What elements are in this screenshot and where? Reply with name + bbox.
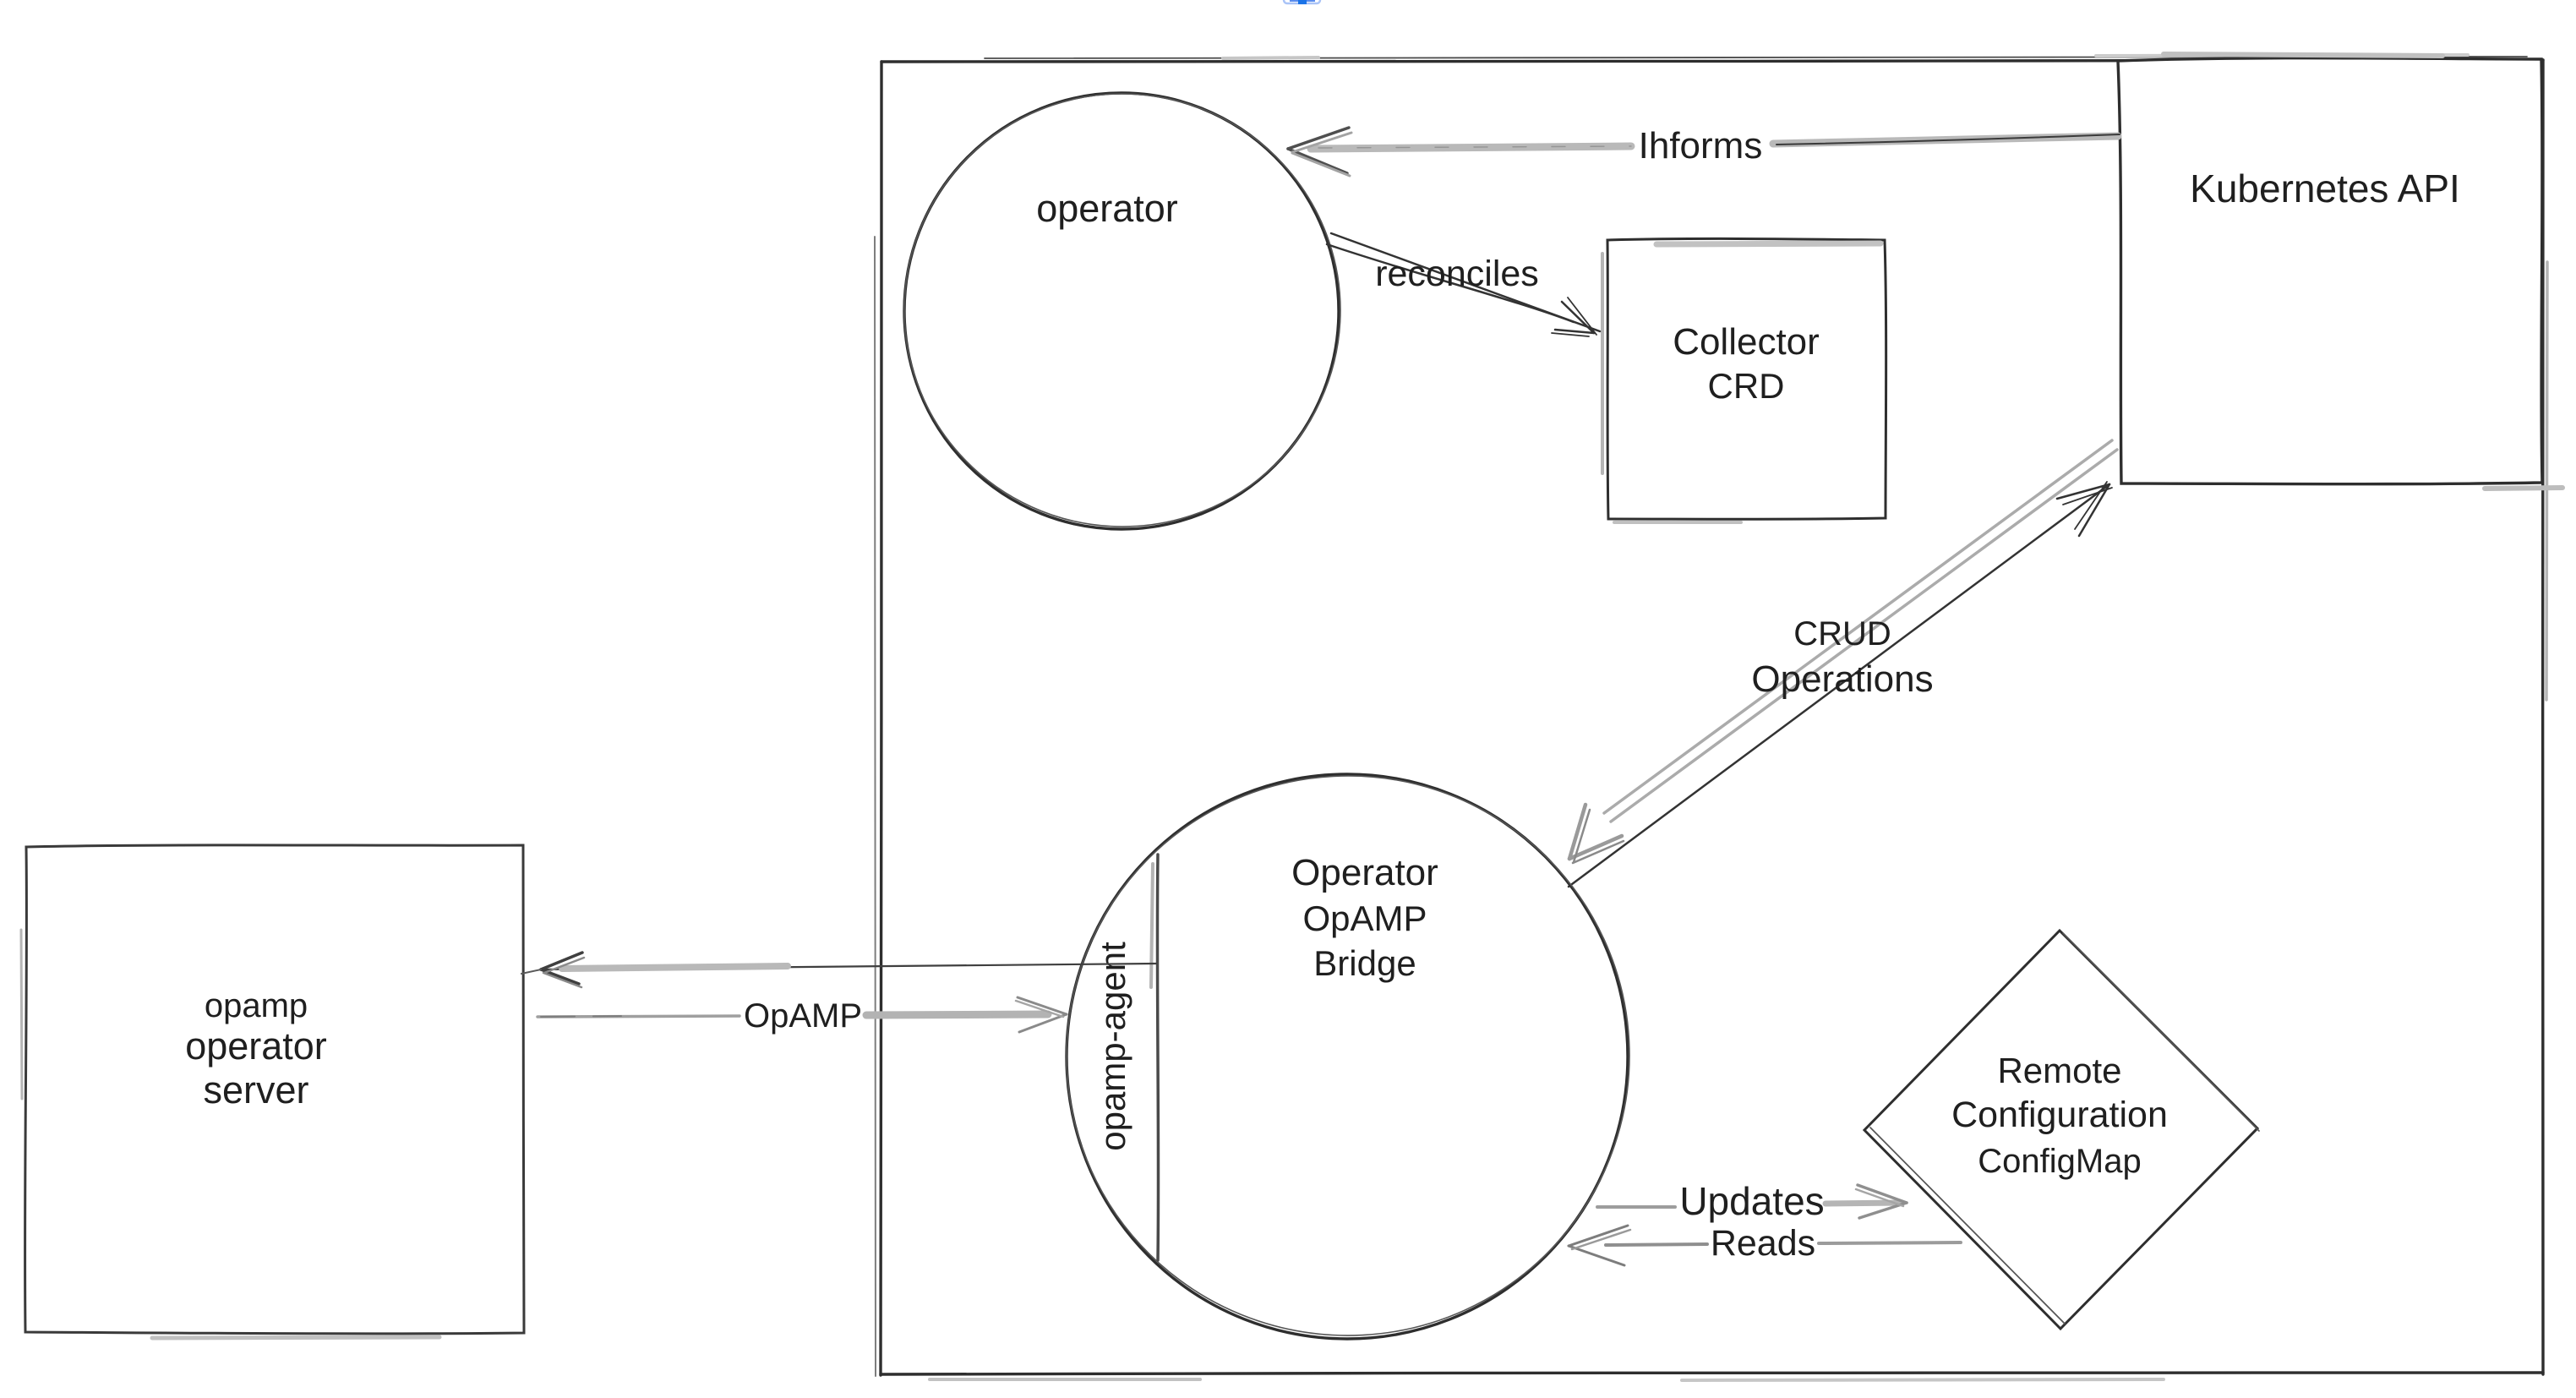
svg-text:Kubernetes API: Kubernetes API (2190, 167, 2460, 210)
svg-text:Bridge: Bridge (1313, 943, 1416, 983)
svg-text:Configuration: Configuration (1951, 1095, 2168, 1135)
svg-text:Operations: Operations (1751, 658, 1933, 700)
svg-text:opamp: opamp (205, 987, 308, 1024)
svg-text:CRUD: CRUD (1793, 615, 1891, 653)
svg-text:Reads: Reads (1711, 1223, 1815, 1264)
svg-text:Ihforms: Ihforms (1639, 125, 1763, 167)
svg-text:opamp-agent: opamp-agent (1093, 942, 1132, 1151)
svg-text:CRD: CRD (1708, 366, 1785, 406)
svg-text:operator: operator (1036, 187, 1178, 230)
svg-text:ConfigMap: ConfigMap (1978, 1143, 2141, 1180)
svg-text:Operator: Operator (1291, 852, 1438, 893)
svg-text:reconciles: reconciles (1375, 254, 1539, 294)
svg-text:Updates: Updates (1679, 1179, 1824, 1223)
svg-text:OpAMP: OpAMP (1302, 898, 1427, 938)
svg-text:Collector: Collector (1673, 321, 1820, 363)
svg-text:operator: operator (185, 1024, 327, 1068)
svg-text:Remote: Remote (1997, 1051, 2121, 1090)
svg-text:server: server (203, 1068, 308, 1111)
svg-text:OpAMP: OpAMP (744, 997, 862, 1035)
